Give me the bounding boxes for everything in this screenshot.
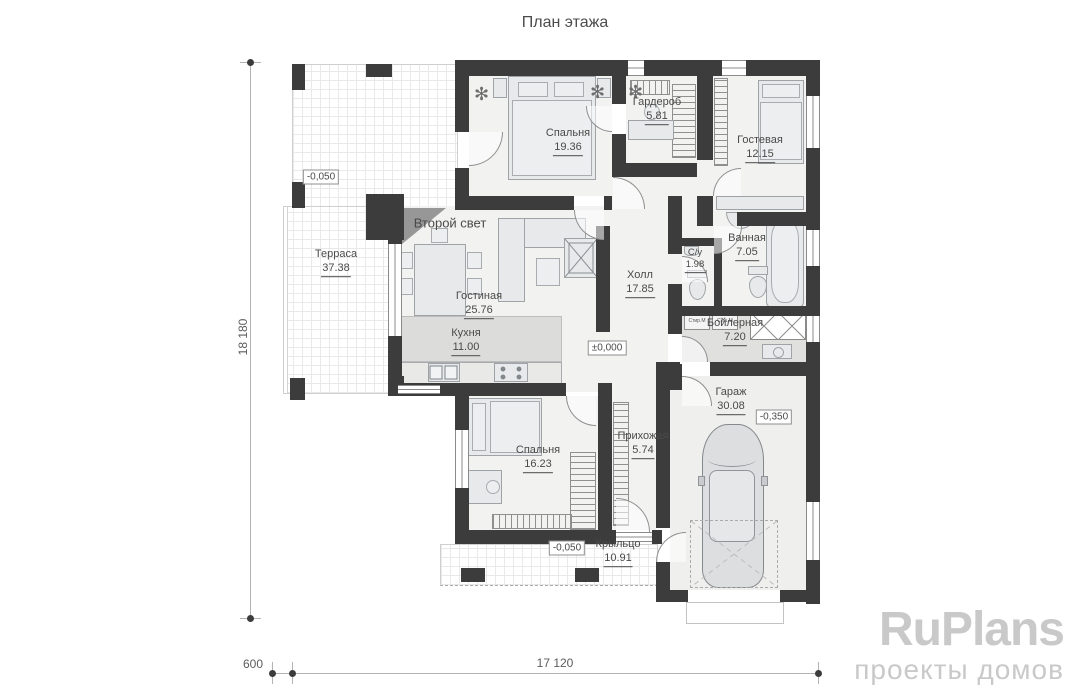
dimension-dot bbox=[815, 670, 822, 677]
pillar bbox=[292, 64, 305, 90]
window bbox=[398, 385, 440, 394]
window bbox=[806, 316, 820, 342]
garage-apron bbox=[686, 602, 784, 624]
shelving-icon bbox=[714, 78, 728, 166]
pillar bbox=[461, 568, 485, 582]
logo-brand: RuPlans bbox=[854, 606, 1064, 654]
wall-segment bbox=[604, 196, 612, 210]
room-name: С/у bbox=[688, 247, 702, 259]
room-area: 17.85 bbox=[625, 283, 655, 298]
wall-segment bbox=[455, 60, 469, 132]
fireplace-icon bbox=[564, 238, 598, 278]
room-label-kitchen: Кухня 11.00 bbox=[451, 326, 480, 356]
room-name: Спальня bbox=[516, 443, 560, 457]
room-area: 16.23 bbox=[523, 458, 553, 473]
room-label-wardrobe: Гардероб 5.81 bbox=[633, 95, 681, 125]
plant-icon: ✻ bbox=[590, 82, 605, 103]
room-name: Гараж bbox=[715, 385, 746, 399]
room-name: Кухня bbox=[451, 326, 480, 340]
room-label-boiler: Бойлерная 7.20 bbox=[707, 316, 763, 346]
room-label-garage: Гараж 30.08 bbox=[715, 385, 746, 415]
bed-pillow bbox=[762, 84, 800, 98]
room-area: 10.91 bbox=[603, 552, 633, 567]
room-area: 1.98 bbox=[685, 260, 706, 273]
kitchen-counter bbox=[390, 362, 562, 384]
floor-plan: План этажа ✻ ✻ ✻ bbox=[0, 0, 1084, 700]
pillar bbox=[575, 568, 599, 582]
room-name: Гардероб bbox=[633, 95, 681, 109]
room-label-second-light: Второй свет bbox=[414, 216, 487, 233]
wall-segment bbox=[612, 76, 626, 104]
pillar bbox=[366, 64, 392, 77]
room-label-bedroom1: Спальня 19.36 bbox=[546, 126, 590, 156]
sink-icon bbox=[428, 363, 460, 382]
window bbox=[455, 430, 469, 488]
bathtub-inner bbox=[771, 219, 799, 303]
wall-segment bbox=[656, 362, 680, 376]
dimension-line-left bbox=[250, 62, 251, 618]
room-area: 5.74 bbox=[631, 444, 654, 459]
room-name: Терраса bbox=[315, 247, 357, 261]
dimension-bottom-label: 17 120 bbox=[531, 656, 579, 670]
elevation-garage: -0,350 bbox=[756, 410, 792, 425]
room-label-bathroom: Ванная 7.05 bbox=[728, 231, 766, 261]
room-name: Крыльцо bbox=[596, 537, 641, 551]
chair-icon bbox=[486, 480, 500, 494]
pillar bbox=[290, 378, 305, 400]
window bbox=[628, 60, 644, 76]
ruplans-logo: RuPlans проекты домов bbox=[854, 606, 1064, 684]
room-name: Второй свет bbox=[414, 216, 487, 233]
wall-segment bbox=[780, 590, 806, 602]
room-area: 5.81 bbox=[645, 110, 668, 125]
toilet-icon bbox=[746, 266, 770, 300]
room-area: 37.38 bbox=[321, 262, 351, 277]
window bbox=[722, 60, 746, 76]
window bbox=[806, 502, 820, 560]
wall-segment bbox=[710, 362, 806, 376]
wall-segment bbox=[455, 196, 574, 210]
wall-segment bbox=[737, 212, 806, 226]
room-name: Прихожая bbox=[618, 429, 669, 443]
room-label-guest: Гостевая 12.15 bbox=[737, 133, 783, 163]
room-area: 7.05 bbox=[735, 246, 758, 261]
room-name: Гостевая bbox=[737, 133, 783, 147]
window bbox=[388, 244, 402, 336]
dimension-offset-label: 600 bbox=[238, 657, 268, 671]
dimension-dot bbox=[269, 670, 276, 677]
room-label-wc: С/у 1.98 bbox=[685, 247, 706, 273]
dimension-line-bottom bbox=[272, 673, 818, 674]
wall-segment bbox=[596, 226, 610, 332]
room-label-porch: Крыльцо 10.91 bbox=[596, 537, 641, 567]
boiler-icon bbox=[762, 344, 792, 359]
dimension-dot bbox=[289, 670, 296, 677]
room-name: Спальня bbox=[546, 126, 590, 140]
room-area: 12.15 bbox=[745, 148, 775, 163]
elevation-hall: ±0,000 bbox=[588, 341, 627, 356]
room-name: Ванная bbox=[728, 231, 766, 245]
dimension-dot bbox=[247, 59, 254, 66]
bed-pillow bbox=[554, 82, 584, 97]
wall-segment bbox=[455, 530, 616, 544]
dimension-left-label: 18 180 bbox=[236, 319, 250, 356]
dimension-dot bbox=[247, 615, 254, 622]
room-label-entry-hall: Прихожая 5.74 bbox=[618, 429, 669, 459]
wall-segment bbox=[697, 196, 713, 226]
room-name: Бойлерная bbox=[707, 316, 763, 330]
room-area: 19.36 bbox=[553, 141, 583, 156]
room-area: 25.76 bbox=[464, 304, 494, 319]
elevation-terrace: -0,050 bbox=[303, 170, 339, 185]
room-label-terrace: Терраса 37.38 bbox=[315, 247, 357, 277]
room-name: Холл bbox=[627, 268, 653, 282]
nightstand-icon bbox=[493, 78, 507, 98]
pillar bbox=[292, 182, 305, 208]
window bbox=[806, 230, 820, 266]
wall-segment bbox=[598, 383, 612, 396]
wall-segment bbox=[612, 134, 626, 163]
wall-segment bbox=[697, 76, 713, 160]
room-area: 30.08 bbox=[716, 400, 746, 415]
wall-segment bbox=[656, 562, 670, 590]
room-label-hall: Холл 17.85 bbox=[625, 268, 655, 298]
room-area: 7.20 bbox=[723, 331, 746, 346]
stove-icon bbox=[494, 363, 528, 382]
wardrobe-icon bbox=[570, 452, 596, 530]
wall-segment bbox=[656, 590, 688, 602]
plant-icon: ✻ bbox=[474, 84, 489, 105]
chair-icon bbox=[467, 252, 482, 269]
wall-segment bbox=[598, 396, 612, 530]
garage-door-zone bbox=[690, 520, 778, 588]
bed-pillow bbox=[518, 82, 548, 97]
room-label-living: Гостиная 25.76 bbox=[456, 289, 502, 319]
side-table-icon bbox=[536, 258, 560, 286]
wall-segment bbox=[668, 306, 806, 316]
room-label-bedroom2: Спальня 16.23 bbox=[516, 443, 560, 473]
bed-pillow bbox=[472, 403, 486, 451]
dresser-icon bbox=[716, 196, 804, 210]
window bbox=[806, 96, 820, 148]
wardrobe-icon bbox=[492, 514, 572, 529]
elevation-porch: -0,050 bbox=[549, 541, 585, 556]
room-area: 11.00 bbox=[452, 341, 481, 356]
wall-segment bbox=[612, 163, 697, 177]
wall-segment bbox=[652, 530, 662, 544]
page-title: План этажа bbox=[455, 14, 675, 32]
room-name: Гостиная bbox=[456, 289, 502, 303]
logo-tagline: проекты домов bbox=[854, 656, 1064, 684]
floor-terrace-upper bbox=[292, 64, 458, 208]
washer-label: Стир.М bbox=[688, 318, 705, 324]
